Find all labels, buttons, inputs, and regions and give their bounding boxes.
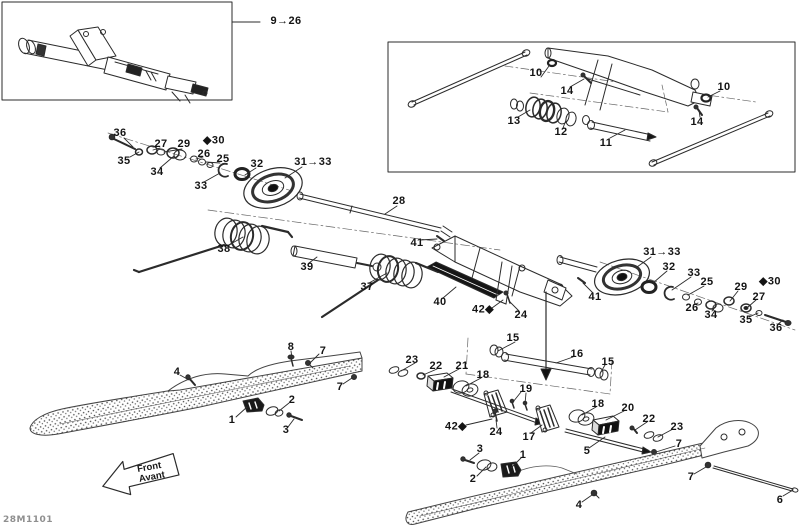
link-cluster-left	[388, 365, 559, 432]
part-left-rail	[30, 352, 362, 435]
inset-box-shock-assembly	[2, 2, 260, 103]
parts-diagram-page: Front Avant 9→261014131211101436352729◆3…	[0, 0, 800, 531]
part-idler-wheel-left	[239, 161, 308, 216]
part-right-rail	[406, 421, 798, 525]
part-center-shock-39	[291, 246, 381, 271]
part-torsion-spring-left-38	[134, 216, 292, 272]
part-link-shaft-16	[490, 345, 608, 380]
drawing-part-code: 28M1101	[3, 515, 53, 525]
inset-box-rear-arm	[388, 42, 795, 172]
front-direction-arrow: Front Avant	[99, 452, 181, 499]
diagram-canvas: Front Avant	[0, 0, 800, 531]
part-slide-bar-40	[427, 262, 503, 298]
part-cross-shaft-28	[297, 192, 452, 237]
part-idler-wheel-right	[557, 253, 653, 300]
hardware-chain-right	[642, 282, 791, 326]
link-cluster-right	[565, 408, 664, 454]
